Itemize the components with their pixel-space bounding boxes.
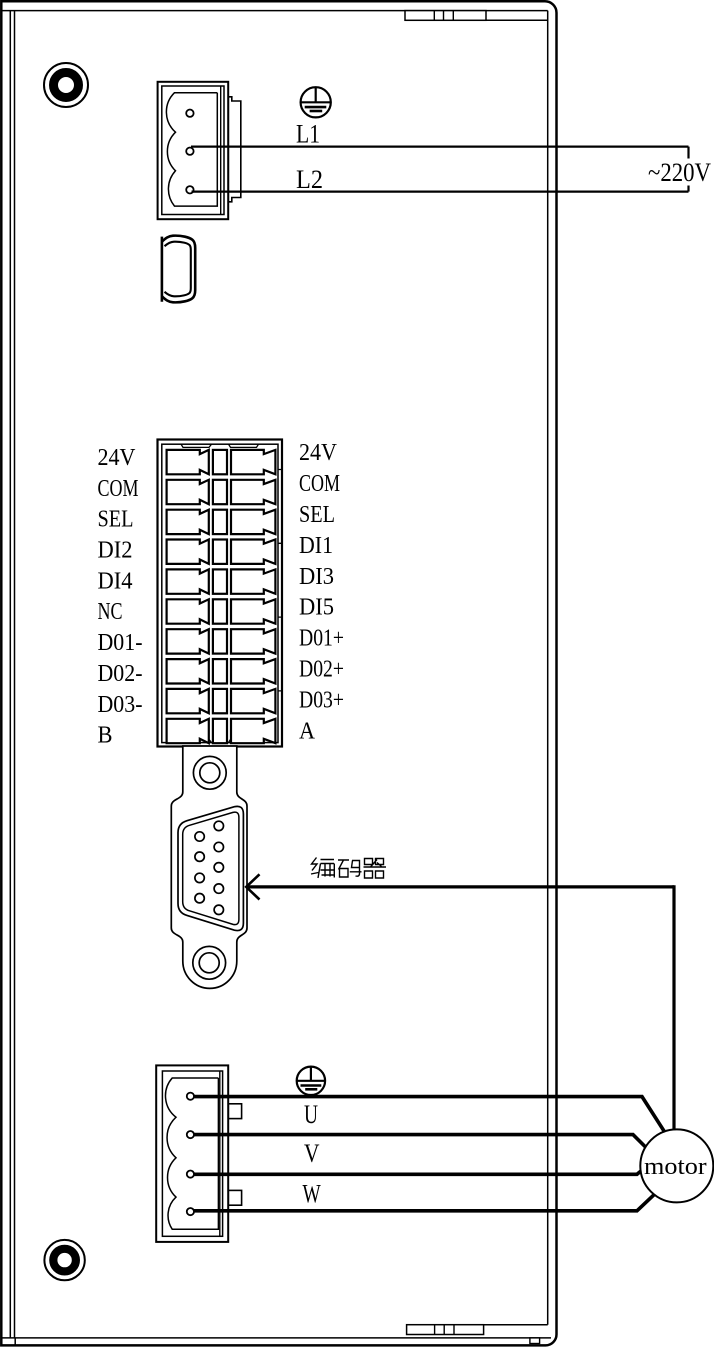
- svg-text:V: V: [304, 1139, 320, 1168]
- svg-text:SEL: SEL: [299, 501, 335, 528]
- svg-text:D03-: D03-: [98, 692, 143, 718]
- svg-text:D03+: D03+: [299, 686, 344, 713]
- svg-text:NC: NC: [98, 599, 123, 625]
- svg-text:D01+: D01+: [299, 625, 344, 652]
- svg-text:W: W: [303, 1180, 322, 1209]
- svg-text:24V: 24V: [299, 439, 337, 466]
- svg-text:DI5: DI5: [299, 594, 334, 621]
- svg-text:DI3: DI3: [299, 563, 334, 590]
- svg-text:COM: COM: [98, 476, 139, 502]
- svg-text:L2: L2: [296, 165, 323, 194]
- svg-text:24V: 24V: [98, 445, 137, 471]
- svg-text:DI4: DI4: [98, 568, 133, 594]
- svg-text:D02+: D02+: [299, 656, 344, 683]
- svg-text:D02-: D02-: [98, 661, 143, 687]
- svg-text:D01-: D01-: [98, 630, 143, 656]
- svg-text:B: B: [98, 723, 113, 749]
- svg-text:COM: COM: [299, 470, 340, 497]
- svg-text:SEL: SEL: [98, 507, 134, 533]
- svg-text:DI1: DI1: [299, 532, 333, 559]
- svg-text:U: U: [304, 1100, 318, 1129]
- svg-text:A: A: [299, 717, 315, 744]
- svg-text:motor: motor: [644, 1154, 707, 1180]
- svg-text:DI2: DI2: [98, 538, 133, 564]
- svg-text:L1: L1: [296, 120, 320, 149]
- svg-text:~220V: ~220V: [648, 158, 711, 187]
